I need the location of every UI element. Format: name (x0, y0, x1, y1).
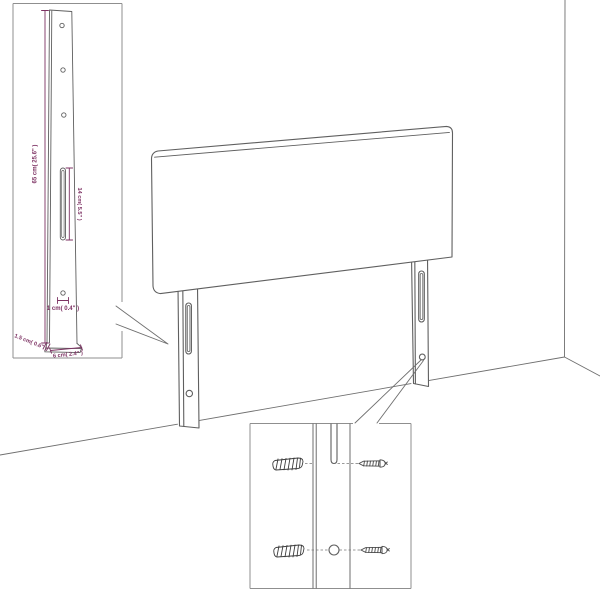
dim-slot-label: 14 cm( 5.5" ) (76, 187, 82, 220)
dim-hole-label: 1 cm( 0.4" ) (47, 306, 79, 312)
wall-corner-line (565, 0, 566, 357)
dim-height-label: 65 cm( 25.6" ) (33, 145, 39, 184)
headboard-assembly-drawing: 65 cm( 25.6" ) 14 cm( 5.5" ) 1 cm( 0.4" … (0, 0, 600, 600)
left-leg (178, 286, 199, 429)
right-leg-edge-line (415, 256, 416, 384)
background (0, 0, 600, 600)
assembly-diagram: 65 cm( 25.6" ) 14 cm( 5.5" ) 1 cm( 0.4" … (0, 0, 600, 600)
left-leg-board (178, 286, 199, 429)
